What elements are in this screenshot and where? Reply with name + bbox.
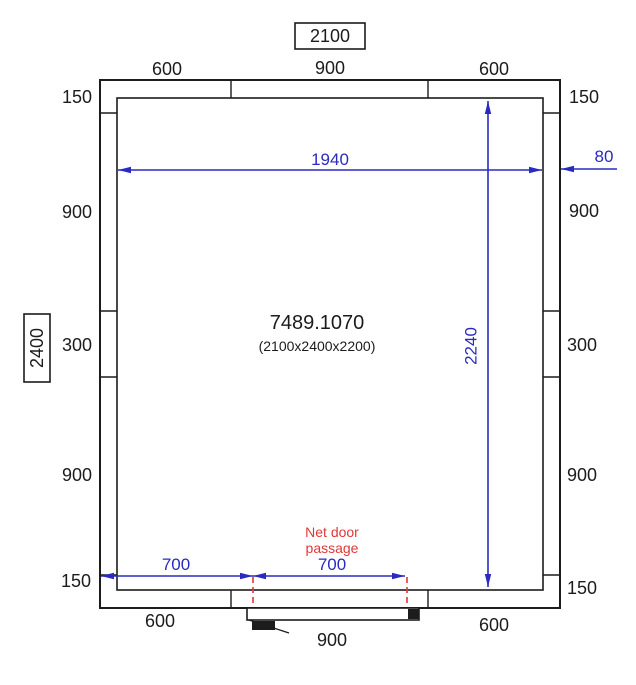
overall-dimensions: (2100x2400x2200) [259,338,376,354]
door-note-line2: passage [306,540,359,556]
arrowhead-right-icon [392,573,405,579]
arrowhead-left-icon [118,167,131,173]
arrowhead-up-icon [485,101,491,114]
top-panel-dim-3: 600 [479,59,509,79]
door-note-line1: Net door [305,524,359,540]
left-panel-dim-1: 150 [62,87,92,107]
cold-room-floor-plan: 2100 2400 600 900 600 150 900 300 900 15… [0,0,636,680]
arrowhead-right-icon [240,573,253,579]
arrowhead-down-icon [485,574,491,587]
product-code: 7489.1070 [270,312,365,334]
overall-width-label: 2100 [310,26,350,46]
right-panel-dim-1: 150 [569,87,599,107]
floor-plan-drawing: 2100 2400 600 900 600 150 900 300 900 15… [0,0,636,680]
right-panel-dim-4: 900 [567,465,597,485]
right-panel-dim-5: 150 [567,578,597,598]
inner-height-dim: 2240 [462,327,481,365]
top-panel-dim-2: 900 [315,58,345,78]
arrowhead-left-icon [561,166,574,172]
inner-width-dim: 1940 [311,150,349,169]
door-handle-icon [408,609,419,619]
bottom-panel-dim-left: 600 [145,611,175,631]
arrowhead-left-icon [253,573,266,579]
left-panel-dim-2: 900 [62,202,92,222]
door-offset-dim: 700 [162,555,190,574]
door-leaf [247,608,419,620]
right-panel-dim-3: 300 [567,335,597,355]
overall-depth-label: 2400 [27,328,47,368]
door-passage-dim: 700 [318,555,346,574]
bottom-panel-dim-right: 600 [479,615,509,635]
left-panel-dim-4: 900 [62,465,92,485]
door-leaf-width-dim: 900 [317,630,347,650]
arrowhead-left-icon [101,573,114,579]
top-panel-dim-1: 600 [152,59,182,79]
left-panel-dim-3: 300 [62,335,92,355]
arrowhead-right-icon [529,167,542,173]
right-panel-dim-2: 900 [569,201,599,221]
wall-clearance-dim: 80 [595,147,614,166]
left-panel-dim-5: 150 [61,571,91,591]
